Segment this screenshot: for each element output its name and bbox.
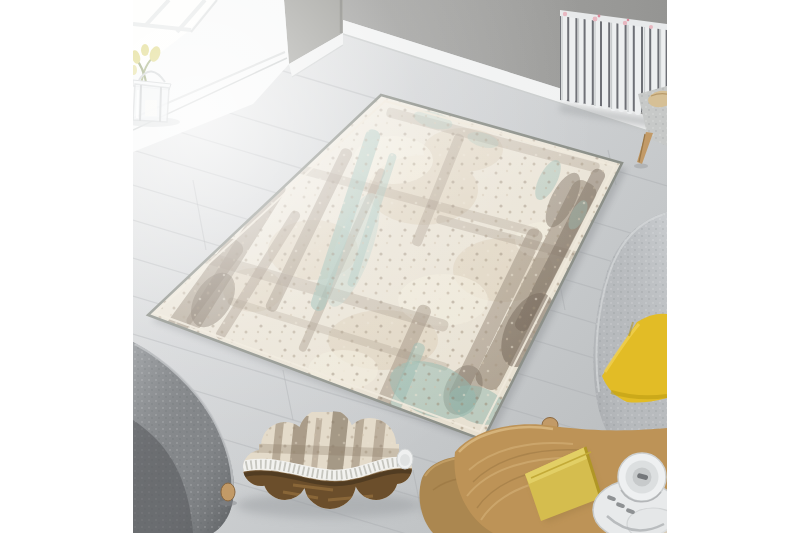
chair-wood-foot <box>221 483 235 501</box>
left-white-margin <box>0 0 133 533</box>
right-white-margin <box>667 0 800 533</box>
room-photo <box>133 0 667 533</box>
product-photo-canvas <box>0 0 800 533</box>
